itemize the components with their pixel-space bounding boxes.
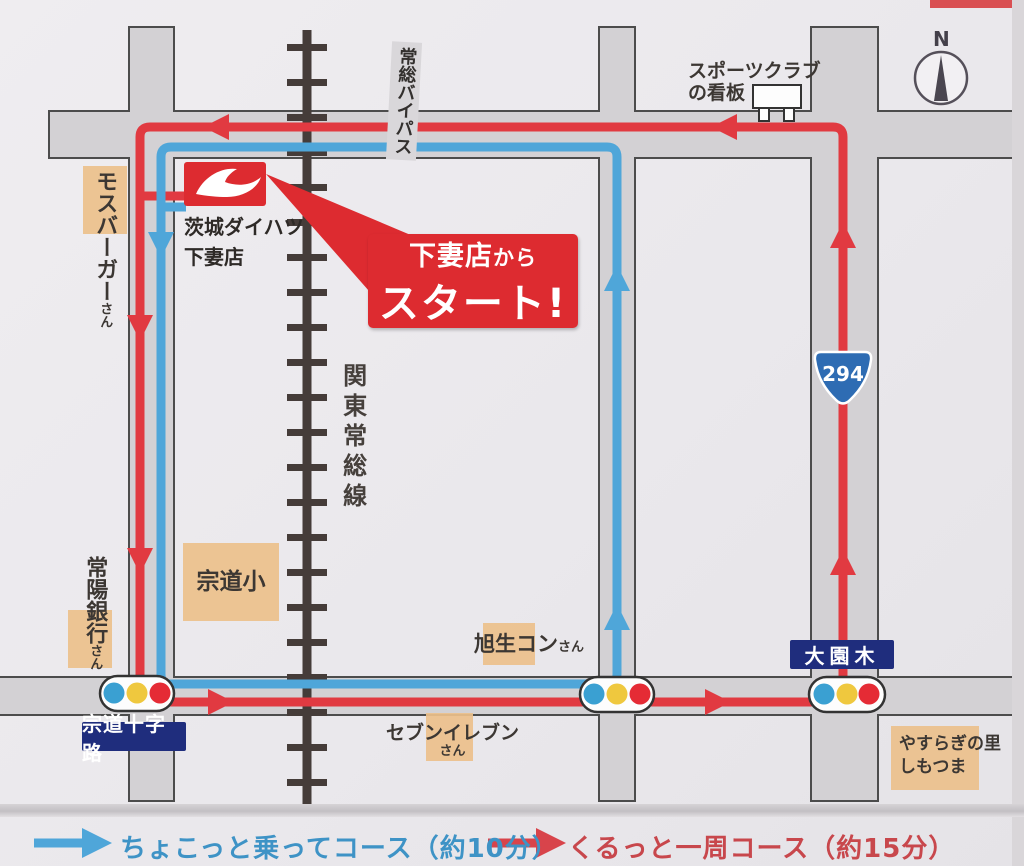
yasuragi-line1: やすらぎの里 [899,733,1001,756]
traffic-light-sodo [100,676,174,711]
joyo-bank-label: 常陽銀行さん [82,556,107,670]
asahi-concrete-name: 旭生コン [474,632,558,656]
sign-sodo-crossroads: 宗道十字路 [82,722,186,751]
callout-line1: 下妻店から [368,234,578,273]
seven-eleven-name: セブンイレブン [386,723,519,745]
asahi-concrete-label: 旭生コンさん [474,632,584,656]
joyo-bank-name: 常陽銀行 [82,556,107,644]
compass-north-label: N [933,28,950,51]
railway-label: 関東常総線 [338,363,366,513]
route-294-number: 294 [822,362,864,386]
store-name-label: 茨城ダイハツ 下妻店 [184,212,304,272]
seven-eleven-label: セブンイレブン さん [386,723,519,760]
joyo-bank-suffix: さん [87,644,102,670]
sports-club-label: スポーツクラブ の看板 [688,61,821,105]
sodo-elementary-label: 宗道小 [183,543,279,621]
yasuragi-label: やすらぎの里 しもつま [899,733,1001,779]
legend-short-course-label: ちょこっと乗ってコース（約10分） [120,828,559,865]
traffic-light-middle [580,677,654,712]
seven-eleven-suffix: さん [386,745,519,760]
mos-burger-label: モスバーガーさん [92,170,117,328]
store-name-line2: 下妻店 [184,242,304,272]
course-map-photo: 294 常総バイパス 関東常総線 N スポーツクラブ [0,0,1024,866]
paper-fold-shadow [0,804,1024,817]
asahi-concrete-suffix: さん [558,640,584,655]
store-name-line1: 茨城ダイハツ [184,212,304,242]
paper-right-edge [1012,0,1024,866]
callout-start: スタート! [368,271,578,329]
start-callout: 下妻店から スタート! [368,234,578,328]
sign-ozonoki: 大園木 [790,640,894,669]
mos-burger-name: モスバーガー [92,170,117,302]
legend-loop-course-label: くるっと一周コース（約15分） [568,828,955,865]
photo-edge-artifact [930,0,1018,8]
mos-burger-suffix: さん [97,302,112,328]
callout-store: 下妻店 [409,241,493,272]
daihatsu-logo [184,162,266,206]
yasuragi-line2: しもつま [899,756,1001,779]
sports-club-line2: の看板 [688,83,821,105]
compass-icon [915,52,967,104]
sports-club-line1: スポーツクラブ [688,61,821,83]
callout-kara: から [493,246,537,270]
traffic-light-ozonoki [809,677,885,712]
legend-short-arrow [34,828,112,858]
bypass-road-label: 常総バイパス [386,41,422,160]
